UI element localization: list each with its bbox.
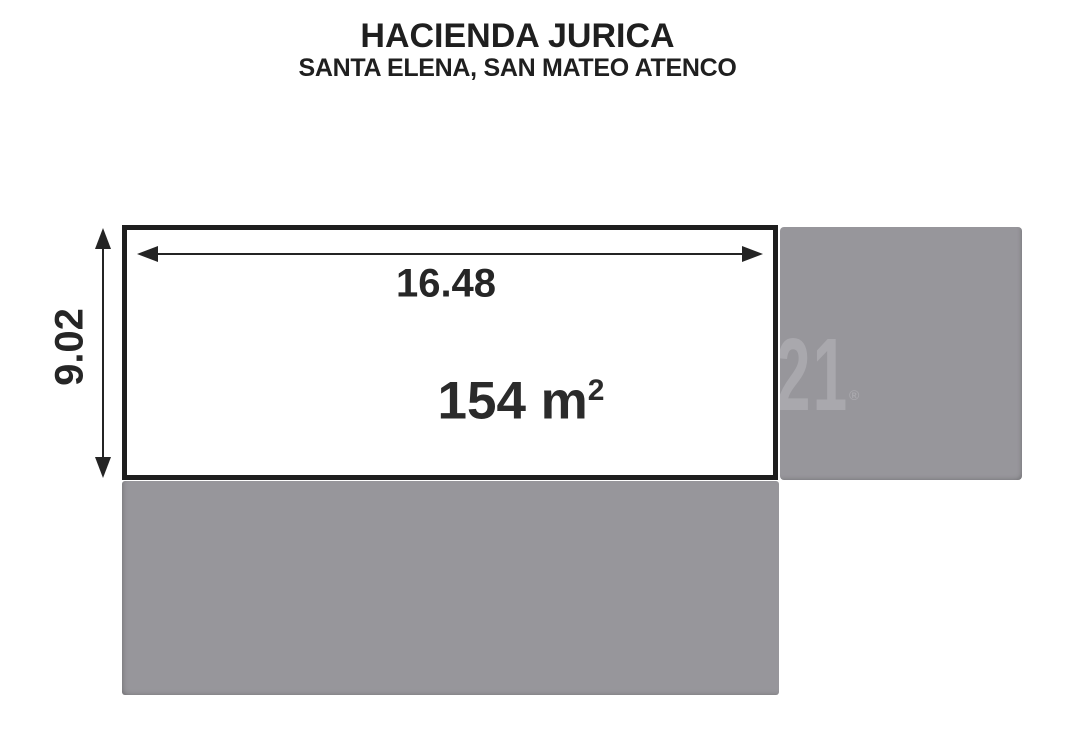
page-title: HACIENDA JURICA [0, 19, 1035, 53]
width-dimension-label: 16.48 [396, 262, 496, 307]
width-dimension-arrow [137, 246, 763, 262]
lot-plan-canvas: HACIENDA JURICA SANTA ELENA, SAN MATEO A… [0, 0, 1080, 745]
area-exponent: 2 [588, 374, 605, 407]
area-label: 154 m2 [438, 371, 605, 432]
dimension-line [153, 253, 747, 255]
century21-watermark: 21 [780, 323, 850, 426]
dimension-line [102, 244, 104, 462]
depth-dimension-arrow [95, 228, 111, 478]
page-subtitle: SANTA ELENA, SAN MATEO ATENCO [0, 56, 1035, 81]
arrow-right-icon [742, 246, 763, 262]
neighbor-parcel-bottom [122, 481, 779, 695]
arrow-down-icon [95, 457, 111, 478]
neighbor-parcel-right: 21 ® [780, 227, 1022, 480]
depth-dimension-label: 9.02 [48, 308, 93, 386]
area-value: 154 m [438, 372, 588, 431]
registered-trademark-icon: ® [849, 388, 859, 402]
